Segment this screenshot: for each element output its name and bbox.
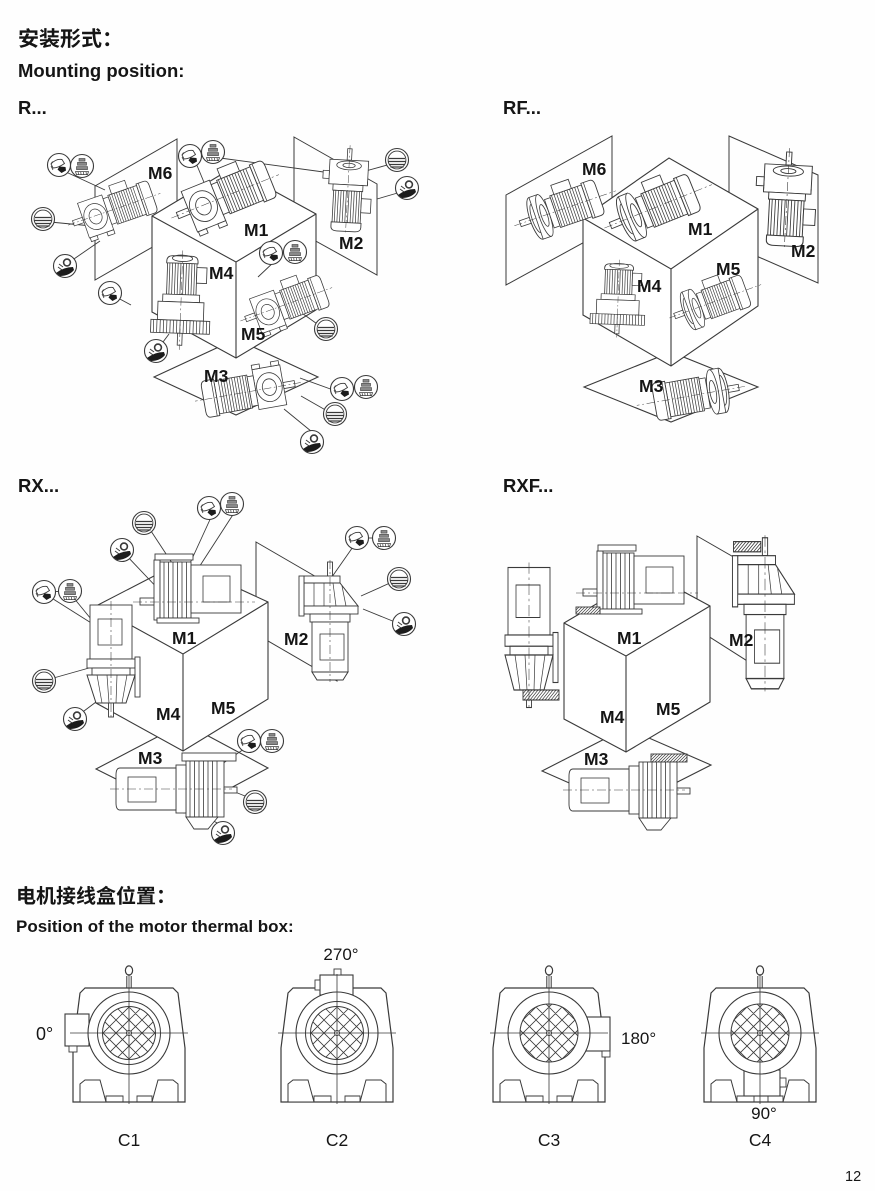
svg-text:M1: M1	[172, 628, 197, 648]
svg-text:C2: C2	[326, 1130, 348, 1150]
svg-text:M2: M2	[284, 629, 309, 649]
svg-text:RF...: RF...	[503, 97, 541, 118]
svg-text:M6: M6	[148, 163, 173, 183]
svg-text:M2: M2	[791, 241, 816, 261]
svg-text:M5: M5	[241, 324, 266, 344]
svg-text:M1: M1	[244, 220, 269, 240]
svg-text:M3: M3	[138, 748, 163, 768]
svg-text:M1: M1	[688, 219, 713, 239]
svg-text:M3: M3	[584, 749, 609, 769]
svg-text:RX...: RX...	[18, 475, 59, 496]
svg-text:M2: M2	[729, 630, 754, 650]
svg-text:M4: M4	[600, 707, 625, 727]
svg-text:RXF...: RXF...	[503, 475, 553, 496]
svg-text:M2: M2	[339, 233, 364, 253]
svg-text:Mounting position:: Mounting position:	[18, 60, 184, 81]
svg-text:M4: M4	[637, 276, 662, 296]
svg-text:90°: 90°	[751, 1104, 777, 1123]
svg-text:12: 12	[845, 1169, 861, 1185]
svg-text:M6: M6	[582, 159, 607, 179]
svg-text:M1: M1	[617, 628, 642, 648]
svg-text:180°: 180°	[621, 1029, 656, 1048]
svg-text:C1: C1	[118, 1130, 140, 1150]
svg-text:R...: R...	[18, 97, 47, 118]
svg-text:Position of the motor thermal: Position of the motor thermal box:	[16, 917, 294, 936]
svg-text:270°: 270°	[323, 945, 358, 964]
svg-text:M3: M3	[639, 376, 664, 396]
svg-text:M4: M4	[156, 704, 181, 724]
svg-text:M4: M4	[209, 263, 234, 283]
svg-text:M5: M5	[211, 698, 236, 718]
svg-text:M5: M5	[716, 259, 741, 279]
svg-text:M3: M3	[204, 366, 229, 386]
svg-text:C4: C4	[749, 1130, 772, 1150]
svg-text:M5: M5	[656, 699, 681, 719]
svg-text:C3: C3	[538, 1130, 560, 1150]
svg-text:0°: 0°	[36, 1024, 53, 1044]
